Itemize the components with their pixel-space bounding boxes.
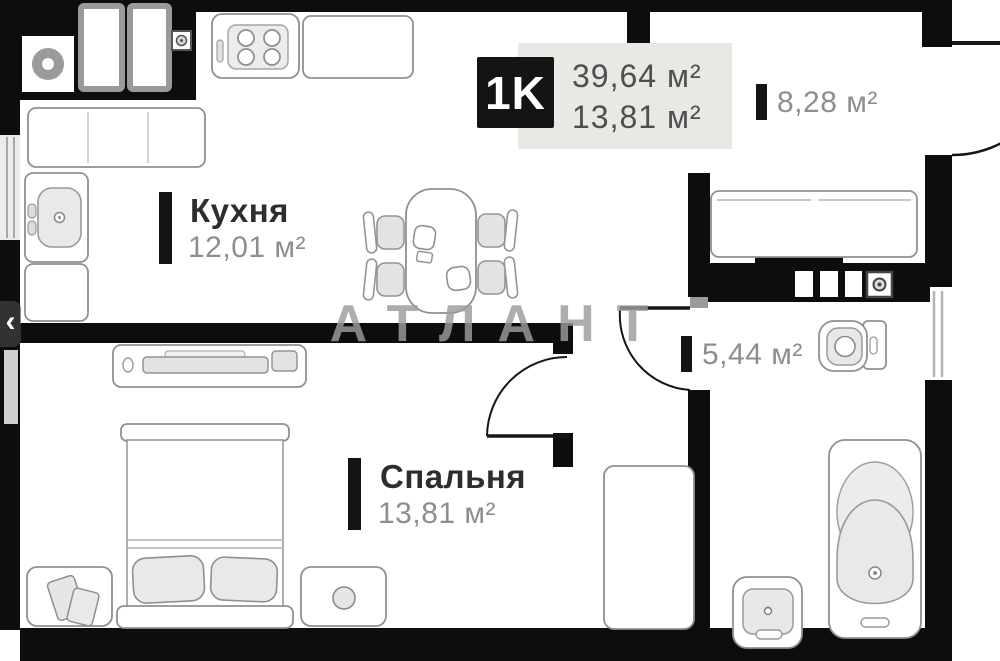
kitchen-window xyxy=(0,135,20,240)
bathroom-window xyxy=(934,291,942,377)
apartment-type-label: 1K xyxy=(485,66,546,120)
kitchen-area: 12,01 м² xyxy=(188,231,306,265)
apartment-type-badge: 1K xyxy=(477,57,554,128)
bathroom-area: 5,44 м² xyxy=(702,338,803,372)
kitchen-cabinet xyxy=(25,264,88,321)
kitchen-sink xyxy=(25,173,88,262)
bathroom-sink xyxy=(733,577,802,648)
kitchen-counter-top xyxy=(303,16,413,78)
washing-machine xyxy=(22,36,74,92)
bathtub xyxy=(829,440,921,638)
bed xyxy=(117,424,293,628)
hallway-label-bar xyxy=(756,84,767,120)
living-area-value: 13,81 м² xyxy=(572,99,702,136)
ventilation-icon xyxy=(172,31,191,50)
bathroom-vent-icon xyxy=(867,272,892,297)
shaft-openings xyxy=(795,271,862,297)
kitchen-label-bar xyxy=(159,192,172,264)
kitchen-label: Кухня xyxy=(190,192,289,230)
kitchen-counter-left xyxy=(28,108,205,167)
closet-doors xyxy=(81,6,169,89)
hallway-area: 8,28 м² xyxy=(777,86,878,120)
carousel-prev-button[interactable]: ‹ xyxy=(0,301,21,347)
nightstand-left xyxy=(27,567,112,627)
bedroom-label: Спальня xyxy=(380,458,526,496)
bedroom-window xyxy=(4,350,18,424)
bedroom-label-bar xyxy=(348,458,361,530)
bedroom-door xyxy=(487,357,567,436)
chevron-left-icon: ‹ xyxy=(6,307,16,337)
total-area-value: 39,64 м² xyxy=(572,58,702,95)
bedroom-wardrobe xyxy=(604,466,694,629)
bathroom-label-bar xyxy=(681,336,692,372)
stove xyxy=(212,14,299,78)
hallway-wardrobe xyxy=(711,191,917,257)
toilet xyxy=(819,321,886,371)
nightstand-right xyxy=(301,567,386,626)
bedroom-area: 13,81 м² xyxy=(378,497,496,531)
floorplan-image: АТЛАНТ Кухня 12,01 м² Спальня 13,81 м² 8… xyxy=(0,0,1000,661)
entry-door xyxy=(952,43,1000,155)
